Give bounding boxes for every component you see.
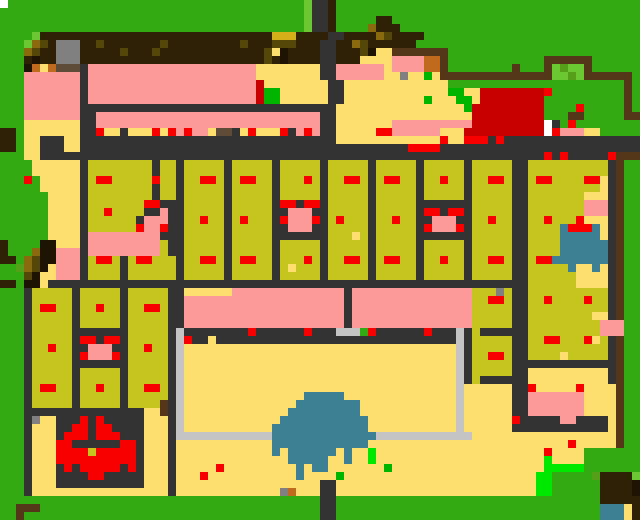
game-map	[0, 0, 640, 520]
map-canvas[interactable]	[0, 0, 640, 520]
